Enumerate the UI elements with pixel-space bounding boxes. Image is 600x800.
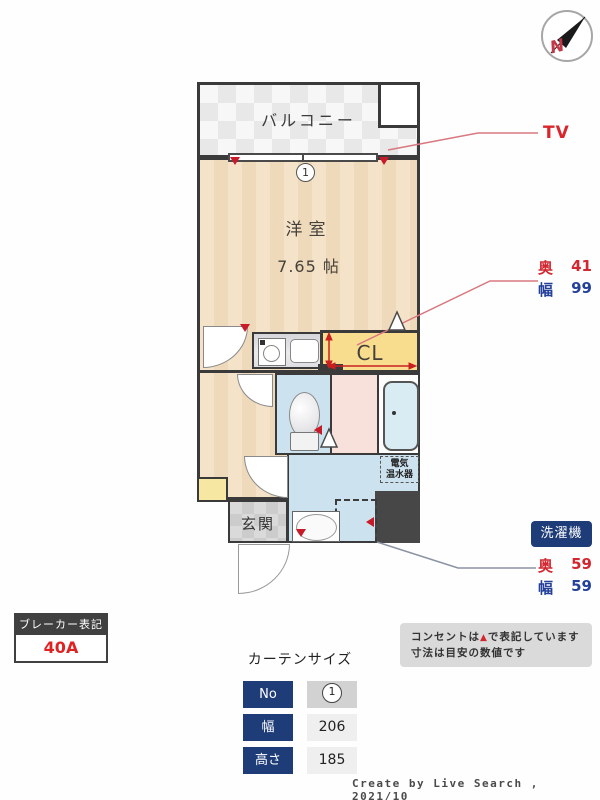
window-number-badge: 1 [296,163,315,182]
curtain-row-height-value: 185 [307,747,357,774]
bathtub-icon [383,381,419,451]
outlet-legend-icon: ▲ [480,633,488,643]
water-heater: 電気 温水器 [380,456,419,483]
curtain-row-no-label: No [243,681,293,708]
kitchen-counter [252,332,322,369]
outlet-icon [296,529,306,537]
washroom [330,373,379,455]
washer-leader-line [377,542,536,568]
closet-width-value: 99 [571,279,592,300]
closet-depth-annotation: 奥 41 [538,257,592,278]
outlet-icon [230,157,240,165]
pipe-space [375,491,420,543]
stove-icon [258,338,286,366]
balcony-window [228,153,378,162]
washer-badge: 洗濯機 [531,521,592,547]
washer-depth-annotation: 奥 59 [538,555,592,576]
compass-icon: N [541,10,593,62]
curtain-table-title: カーテンサイズ [240,649,360,669]
shoe-cabinet [197,477,228,502]
bathroom [377,373,420,455]
entrance-door-arc [238,544,290,594]
water-heater-label-1: 電気 [381,459,418,470]
room-size-label: 7.65 帖 [197,253,420,277]
breaker-value: 40A [16,635,106,661]
closet-depth-value: 41 [571,257,592,278]
room-name-label: 洋室 [197,215,420,240]
outlet-icon [240,324,250,332]
curtain-row-height-label: 高さ [243,747,293,774]
washer-width-value: 59 [571,577,592,598]
window-frame-tick [302,155,304,160]
closet-width-annotation: 幅 99 [538,279,592,300]
washer-width-annotation: 幅 59 [538,577,592,598]
breaker-box: ブレーカー表記 40A [14,613,108,663]
credit-text: Create by Live Search , 2021/10 [352,777,592,800]
legend-notes: コンセントは▲で表記しています 寸法は目安の数値です [400,623,592,667]
closet-label: CL [323,341,417,365]
legend-note-line2: 寸法は目安の数値です [411,646,592,661]
window-frame-tick [376,155,378,160]
balcony-corner-box [378,82,420,128]
curtain-row-width-label: 幅 [243,714,293,741]
kitchen-sink-icon [290,339,319,363]
washer-depth-value: 59 [571,555,592,576]
curtain-window-number: 1 [322,683,342,703]
tv-annotation: TV [543,123,570,143]
closet-width-label: 幅 [538,279,553,300]
washbasin-icon [292,511,340,542]
compass-needle-icon: N [543,12,591,60]
outlet-icon [366,517,374,527]
washer-depth-label: 奥 [538,555,553,576]
legend-note-line1: コンセントは▲で表記しています [411,630,592,646]
water-heater-label-2: 温水器 [381,470,418,481]
outlet-icon [379,157,389,165]
curtain-row-width-value: 206 [307,714,357,741]
breaker-title: ブレーカー表記 [16,615,106,635]
curtain-row-no-value: 1 [307,681,357,708]
floor-plan-page: N バルコニー 1 洋室 7.65 帖 CL [0,0,600,800]
outlet-icon [314,425,322,435]
toilet-room [275,373,332,455]
washer-width-label: 幅 [538,577,553,598]
entrance: 玄関 [228,500,288,543]
entrance-label: 玄関 [230,513,286,534]
closet-depth-label: 奥 [538,257,553,278]
